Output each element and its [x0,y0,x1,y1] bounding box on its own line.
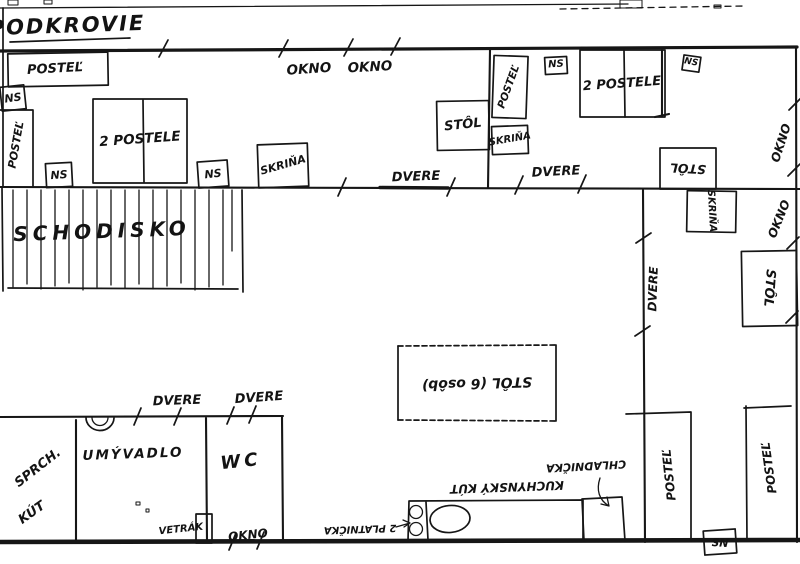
nightstand-4-label: NS [548,59,564,70]
staircase-label: SCHODISKO [13,218,191,244]
door-2-label: DVERE [531,164,580,180]
fridge-arrow [598,478,609,506]
kitchen-corner-label: KUCHYNSKÝ KÚT [450,479,564,495]
window-ticks-top-wall [159,38,400,57]
scan-speck [44,0,52,4]
washbasin-label: UMÝVADLO [82,446,183,463]
table-3-label: STÔL [761,269,777,307]
door-3-label: DVERE [152,394,201,409]
bed-bottomright-1-outline [626,412,691,541]
nightstand-3-label: NS [204,168,222,181]
nightstand-1-label: NS [4,91,23,104]
wall-vertical-long [643,190,645,542]
page-title: PODKROVIE [0,13,146,39]
washbasin-outer-arc [86,417,114,431]
burner-2 [410,523,423,536]
door-vertical-label: DVERE [646,266,660,311]
wall-wc-right [282,417,283,541]
scan-speck [8,0,18,5]
nightstand-6-label: NS [711,536,729,548]
staircase-left-edge [2,188,3,291]
pencil-smudge [146,509,149,512]
page-top-border [0,4,628,8]
scanned-floorplan-page: PODKROVIE POSTEĽ NS POSTEĽ 2 POSTELE NS … [0,0,800,564]
burners-label: 2 PLATNIČKA [324,522,397,535]
window-top-1-label: OKNO [286,62,332,79]
kitchen-counter-divider [426,502,428,540]
table-1-label: STÔL [444,117,483,134]
fridge-outline [582,497,625,541]
wall-bath-top [0,416,283,417]
dining-table-label: STÔL (6 osôb) [422,374,533,392]
kitchen-sink-oval [429,504,471,534]
bed-topleft-label: POSTEĽ [27,61,84,77]
burner-1 [410,506,423,519]
kitchen-counter-outline [408,500,583,541]
wall-top [0,47,797,51]
window-top-2-label: OKNO [347,60,392,76]
floorplan-drawing [0,0,800,564]
nightstand-2-label: NS [50,169,68,181]
wall-wc-left [206,418,207,541]
wall-bottom [0,540,800,542]
staircase-right-edge [242,190,243,292]
pencil-smudge [136,502,140,505]
door-4-label: DVERE [234,390,283,406]
wardrobe-3-label: SKRIŇA [705,190,717,233]
staircase-bottom-edge [8,288,238,289]
door-1-label: DVERE [391,170,440,185]
washbasin-inner-arc [92,417,108,426]
wc-label: WC [220,451,263,473]
table-2-label: STÔL [670,161,707,175]
